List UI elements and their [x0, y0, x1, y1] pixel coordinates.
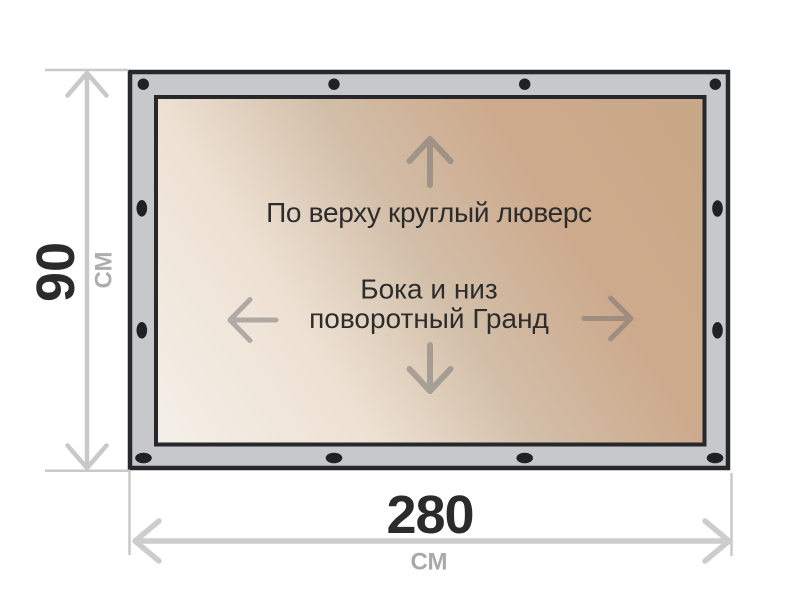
svg-text:СМ: СМ — [410, 549, 447, 576]
svg-text:90: 90 — [26, 242, 86, 302]
svg-text:По верху круглый люверс: По верху круглый люверс — [266, 197, 592, 228]
svg-text:СМ: СМ — [91, 251, 118, 288]
svg-text:поворотный Гранд: поворотный Гранд — [309, 303, 549, 334]
svg-text:280: 280 — [386, 485, 473, 545]
svg-text:Бока и низ: Бока и низ — [360, 274, 498, 305]
